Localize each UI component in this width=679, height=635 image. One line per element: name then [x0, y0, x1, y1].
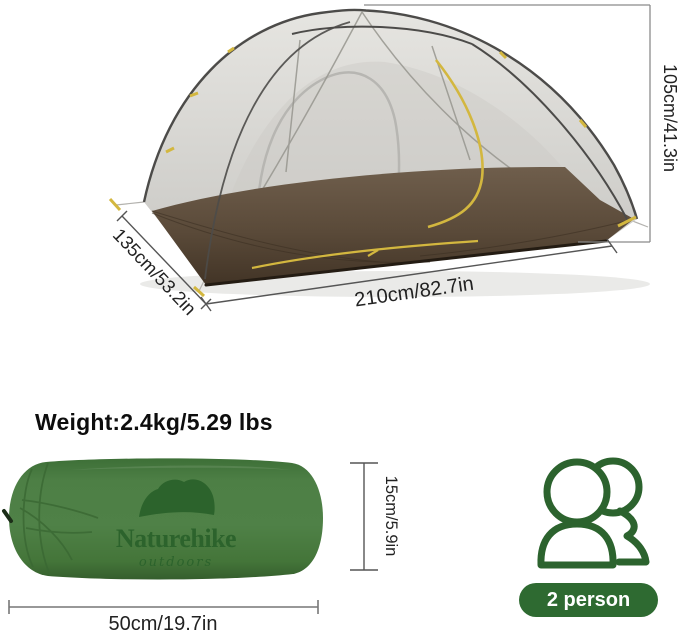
brand-name: Naturehike: [116, 524, 236, 553]
sack-height-label: 15cm/5.9in: [382, 476, 400, 557]
sack-length-label: 50cm/19.7in: [109, 613, 218, 635]
sack-length-dimension-lines: [9, 600, 318, 614]
infographic-svg: 105cm/41.3in 135cm/53.2in 210cm/82.7in: [0, 0, 679, 635]
sack-height-dimension-lines: [350, 463, 378, 570]
sack-length-dimension: 50cm/19.7in: [9, 600, 318, 635]
people-icon: [541, 461, 646, 565]
tent-illustration: [110, 10, 650, 297]
product-infographic: 105cm/41.3in 135cm/53.2in 210cm/82.7in: [0, 0, 679, 635]
capacity-badge: 2 person: [519, 583, 658, 617]
capacity-badge-label: 2 person: [547, 589, 630, 612]
sack-height-dimension: 15cm/5.9in: [350, 463, 400, 570]
back-person-body: [619, 511, 646, 562]
weight-label: Weight:2.4kg/5.29 lbs: [35, 409, 273, 436]
brand-tagline: outdoors: [139, 555, 213, 570]
tent-height-label: 105cm/41.3in: [660, 64, 679, 172]
front-person-head: [547, 462, 607, 522]
stuff-sack: Naturehike outdoors: [4, 458, 323, 579]
front-person-body: [541, 524, 613, 565]
